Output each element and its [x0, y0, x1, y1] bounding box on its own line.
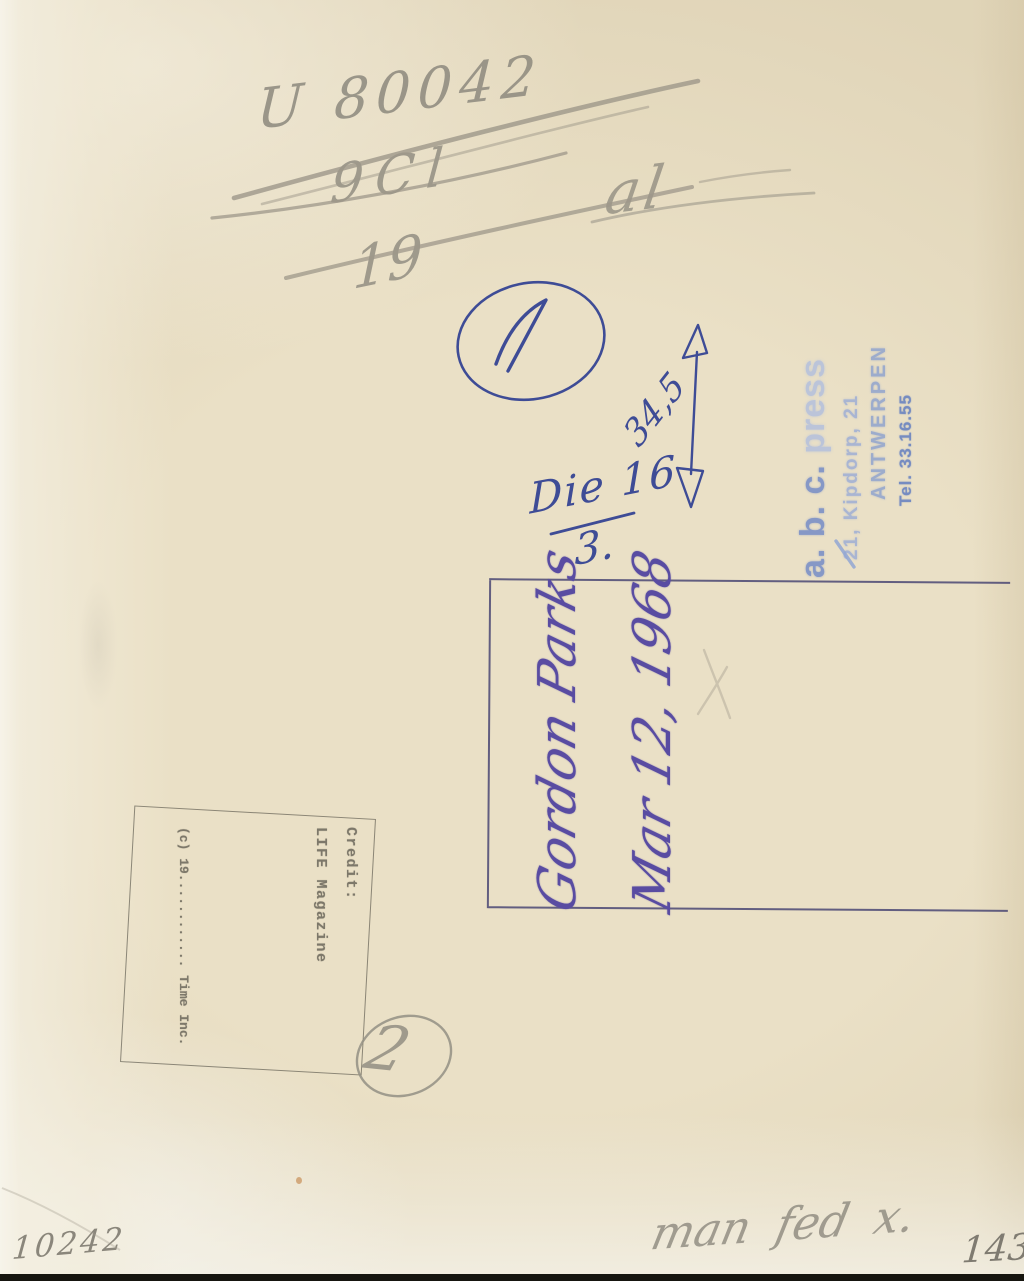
pencil-name-note: man fed x. [647, 1188, 921, 1260]
agency-stamp-address: 21, Kipdorp, 21 [839, 300, 865, 578]
pencil-code-number: U 80042 [255, 42, 544, 142]
measurement-arrow [677, 325, 707, 507]
agency-stamp-city: ANTWERPEN [865, 300, 893, 578]
pencil-scribble: al [601, 151, 673, 228]
signature-date: Mar 12, 1968 [606, 596, 701, 923]
credit-copyright-line: (c) 19............ Time Inc. [176, 827, 191, 1051]
arrow-shaft [691, 352, 697, 474]
arrow-head-up [683, 325, 707, 358]
paper-smudge [78, 580, 118, 710]
arrow-head-down [677, 468, 703, 507]
pencil-number-19: 19 [352, 222, 424, 304]
agency-stamp-phone: Tel. 33.16.55 [893, 300, 918, 578]
agency-stamp-abc: a. b. c. [794, 464, 832, 578]
credit-stamp: Credit: LIFE Magazine (c) 19............… [157, 827, 361, 1051]
rust-stain [296, 1177, 302, 1184]
pencil-serial-number: 10242 [11, 1221, 127, 1267]
photo-bottom-edge [0, 1274, 1024, 1281]
credit-magazine: LIFE Magazine [309, 827, 331, 1051]
photographer-signature: Gordon Parks [511, 596, 606, 923]
height-measurement: 34,5 [617, 365, 693, 455]
date-note-numerator: Die 16 [529, 445, 678, 524]
pencil-circled-two: 2 [357, 1011, 419, 1086]
credit-label: Credit: [339, 827, 361, 1051]
agency-stamp: a. b. c. press 21, Kipdorp, 21 ANTWERPEN… [787, 300, 937, 578]
pencil-crossed-value: 9Cl [328, 135, 457, 216]
photo-verso: U 80042 9Cl 19 al 34,5 Die 16 3. Gordon … [0, 0, 1024, 1281]
circled-one-mark [447, 269, 616, 413]
signature-stamp: Gordon Parks Mar 12, 1968 [511, 610, 701, 910]
agency-stamp-name: a. b. c. press [787, 300, 839, 578]
agency-stamp-press: press [794, 358, 832, 464]
pencil-number-1430: 1430 [960, 1225, 1024, 1271]
